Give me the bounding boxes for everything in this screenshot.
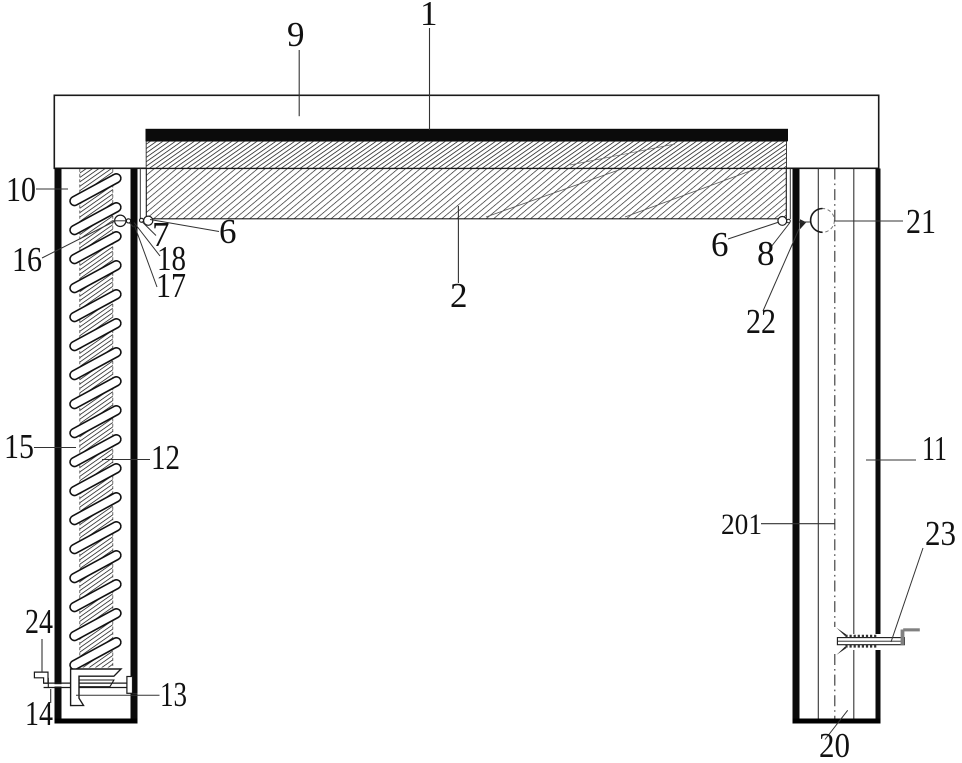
svg-text:15: 15 <box>4 427 34 466</box>
svg-text:22: 22 <box>746 302 776 341</box>
svg-text:6: 6 <box>711 225 729 264</box>
svg-text:21: 21 <box>906 202 936 241</box>
svg-text:17: 17 <box>156 266 186 305</box>
svg-text:201: 201 <box>721 508 762 541</box>
svg-text:8: 8 <box>757 234 775 273</box>
svg-text:12: 12 <box>151 438 180 477</box>
svg-text:10: 10 <box>6 170 36 209</box>
svg-text:11: 11 <box>922 429 947 468</box>
svg-text:1: 1 <box>420 0 438 33</box>
svg-text:2: 2 <box>450 276 468 315</box>
svg-text:13: 13 <box>160 675 187 714</box>
svg-text:24: 24 <box>25 602 53 641</box>
svg-text:6: 6 <box>219 212 237 251</box>
svg-text:14: 14 <box>25 694 53 733</box>
svg-text:23: 23 <box>925 514 956 553</box>
svg-text:20: 20 <box>819 726 850 763</box>
svg-text:16: 16 <box>12 240 42 279</box>
svg-text:9: 9 <box>287 15 305 54</box>
